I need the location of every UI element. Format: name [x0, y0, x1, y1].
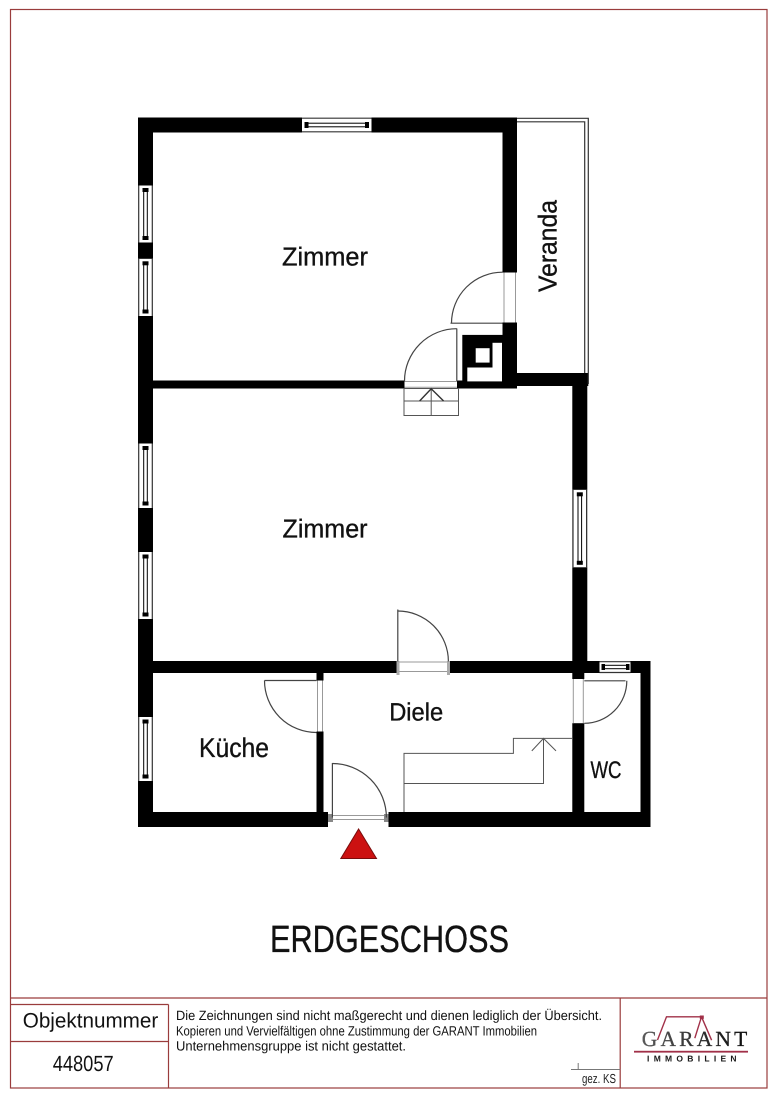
svg-text:Zimmer: Zimmer [283, 513, 368, 543]
svg-text:IMMOBILIEN: IMMOBILIEN [647, 1054, 737, 1064]
svg-text:Diele: Diele [389, 699, 443, 727]
svg-text:Kopieren und Vervielfältigen o: Kopieren und Vervielfältigen ohne Zustim… [176, 1023, 537, 1038]
svg-text:Unternehmensgruppe ist nicht g: Unternehmensgruppe ist nicht gestattet. [176, 1039, 406, 1054]
svg-text:Objektnummer: Objektnummer [23, 1009, 159, 1032]
svg-text:Küche: Küche [199, 733, 269, 763]
svg-text:gez. KS: gez. KS [582, 1071, 616, 1086]
svg-text:Zimmer: Zimmer [282, 242, 368, 272]
svg-text:WC: WC [591, 757, 622, 784]
svg-text:ERDGESCHOSS: ERDGESCHOSS [270, 919, 509, 961]
svg-text:Veranda: Veranda [533, 199, 563, 292]
svg-text:448057: 448057 [53, 1051, 114, 1076]
svg-text:Die Zeichnungen sind nicht maß: Die Zeichnungen sind nicht maßgerecht un… [176, 1008, 602, 1023]
